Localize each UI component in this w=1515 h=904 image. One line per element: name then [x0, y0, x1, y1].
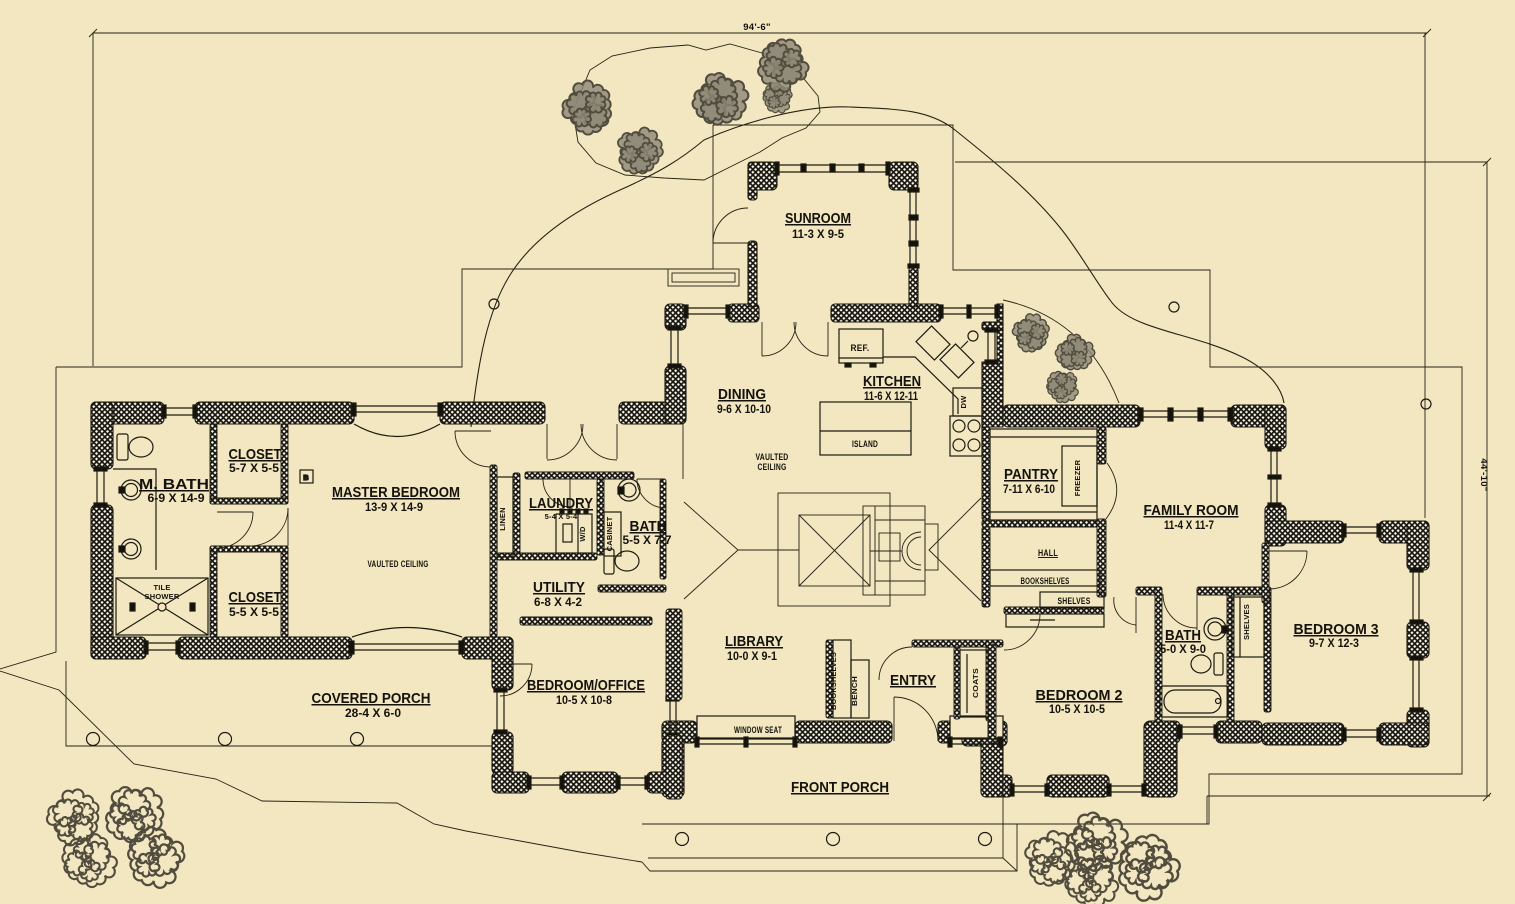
svg-text:BOOKSHELVES: BOOKSHELVES [1021, 576, 1070, 587]
svg-text:FREEZER: FREEZER [1073, 459, 1082, 496]
svg-text:COVERED PORCH: COVERED PORCH [312, 690, 431, 707]
svg-text:BATH: BATH [630, 518, 667, 535]
svg-text:5-5 X 5-5: 5-5 X 5-5 [229, 607, 280, 619]
svg-text:9-7 X 12-3: 9-7 X 12-3 [1309, 638, 1359, 650]
svg-text:10-5 X 10-8: 10-5 X 10-8 [556, 695, 613, 707]
svg-text:5-0 X 9-0: 5-0 X 9-0 [1160, 644, 1206, 656]
svg-text:CABINET: CABINET [605, 516, 614, 551]
svg-text:LAUNDRY: LAUNDRY [529, 495, 593, 512]
svg-text:5-5 X 7-7: 5-5 X 7-7 [623, 535, 672, 547]
svg-text:BATH: BATH [1165, 627, 1201, 644]
svg-text:SHELVES: SHELVES [1058, 596, 1091, 607]
svg-text:REF.: REF. [851, 343, 870, 354]
svg-text:13-9 X 14-9: 13-9 X 14-9 [365, 502, 423, 514]
svg-text:CLOSET: CLOSET [229, 589, 282, 606]
svg-text:SHELVES: SHELVES [1242, 604, 1251, 640]
svg-text:94'-6": 94'-6" [743, 22, 771, 33]
svg-text:28-4 X 6-0: 28-4 X 6-0 [345, 708, 401, 720]
svg-text:FRONT PORCH: FRONT PORCH [791, 779, 889, 796]
svg-text:MASTER BEDROOM: MASTER BEDROOM [332, 484, 460, 501]
svg-text:BEDROOM 3: BEDROOM 3 [1294, 621, 1379, 638]
svg-text:7-11 X 6-10: 7-11 X 6-10 [1003, 484, 1055, 496]
svg-text:11-4 X 11-7: 11-4 X 11-7 [1164, 520, 1214, 532]
svg-text:KITCHEN: KITCHEN [863, 373, 921, 390]
svg-text:CEILING: CEILING [758, 462, 787, 473]
svg-text:SUNROOM: SUNROOM [785, 210, 851, 227]
svg-text:UTILITY: UTILITY [533, 579, 585, 596]
svg-text:9-6 X 10-10: 9-6 X 10-10 [717, 404, 771, 416]
svg-text:ISLAND: ISLAND [852, 439, 878, 450]
svg-text:FAMILY ROOM: FAMILY ROOM [1144, 502, 1239, 519]
svg-text:5-4 X 5-4: 5-4 X 5-4 [545, 512, 578, 521]
svg-text:VAULTED CEILING: VAULTED CEILING [368, 559, 429, 570]
svg-text:HALL: HALL [1038, 548, 1058, 559]
svg-text:11-3 X 9-5: 11-3 X 9-5 [792, 229, 845, 241]
svg-text:DINING: DINING [718, 386, 766, 403]
svg-text:6-9 X 14-9: 6-9 X 14-9 [148, 493, 205, 505]
svg-text:TILE: TILE [153, 583, 170, 592]
svg-text:DW: DW [959, 395, 968, 409]
svg-text:5-7 X 5-5: 5-7 X 5-5 [229, 463, 280, 475]
svg-text:11-6 X 12-11: 11-6 X 12-11 [864, 391, 918, 403]
svg-text:W/D: W/D [578, 526, 587, 542]
svg-text:10-5 X 10-5: 10-5 X 10-5 [1049, 704, 1106, 716]
svg-text:ENTRY: ENTRY [890, 672, 936, 689]
svg-text:44'-10": 44'-10" [1478, 458, 1489, 491]
svg-text:LIBRARY: LIBRARY [725, 633, 783, 650]
svg-text:6-8 X 4-2: 6-8 X 4-2 [534, 597, 582, 609]
svg-text:CLOSET: CLOSET [229, 446, 282, 463]
svg-text:10-0 X 9-1: 10-0 X 9-1 [727, 651, 778, 663]
svg-text:PANTRY: PANTRY [1004, 466, 1058, 483]
svg-text:SHOWER: SHOWER [145, 592, 180, 601]
svg-text:LINEN: LINEN [498, 507, 507, 531]
svg-text:B: B [303, 473, 309, 482]
svg-text:BEDROOM 2: BEDROOM 2 [1036, 687, 1123, 704]
svg-text:BENCH: BENCH [850, 676, 859, 706]
svg-text:M. BATH: M. BATH [139, 476, 209, 493]
svg-text:BOOKSHELVES: BOOKSHELVES [829, 652, 838, 710]
svg-text:COATS: COATS [971, 668, 980, 698]
svg-text:BEDROOM/OFFICE: BEDROOM/OFFICE [527, 677, 645, 694]
svg-text:WINDOW SEAT: WINDOW SEAT [734, 725, 782, 736]
